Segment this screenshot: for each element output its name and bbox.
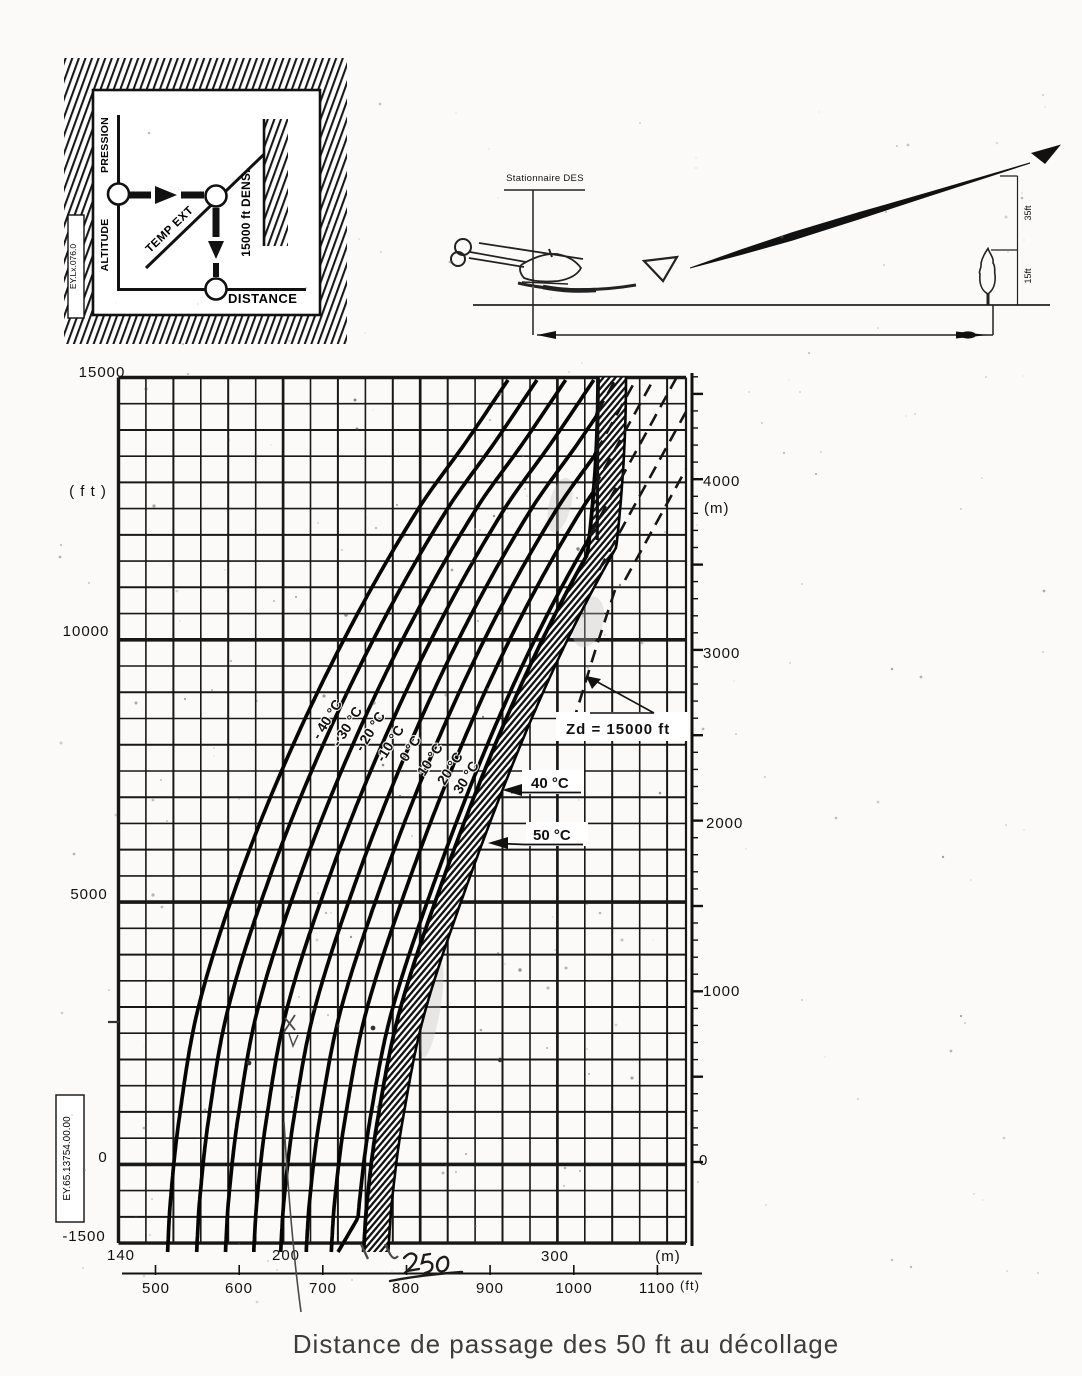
svg-text:DISTANCE: DISTANCE [228,291,297,306]
svg-text:( f t ): ( f t ) [69,483,107,500]
svg-text:EY.65.13754.00.00: EY.65.13754.00.00 [62,1116,73,1201]
svg-text:Distance de passage des 50 ft: Distance de passage des 50 ft au décolla… [293,1329,839,1359]
svg-text:140: 140 [107,1247,135,1264]
svg-text:200: 200 [272,1247,300,1264]
svg-text:50 °C: 50 °C [533,827,571,844]
svg-text:15ft: 15ft [1023,268,1033,284]
svg-text:(m): (m) [655,1248,681,1265]
svg-text:15000 ft DENS.: 15000 ft DENS. [239,169,253,256]
svg-text:0: 0 [98,1149,107,1166]
svg-text:900: 900 [476,1280,504,1297]
svg-text:3000: 3000 [703,645,740,662]
svg-text:600: 600 [225,1280,253,1297]
svg-text:EY.Lx.076.0: EY.Lx.076.0 [68,244,78,289]
svg-text:700: 700 [309,1280,337,1297]
svg-text:10000: 10000 [63,623,110,640]
svg-text:Stationnaire DES: Stationnaire DES [506,173,584,184]
svg-text:2000: 2000 [706,815,743,832]
svg-text:(m): (m) [704,500,730,517]
svg-text:500: 500 [142,1280,170,1297]
svg-text:1000: 1000 [703,983,740,1000]
svg-text:1000: 1000 [555,1280,592,1297]
svg-text:Zd = 15000 ft: Zd = 15000 ft [566,721,670,738]
svg-text:35ft: 35ft [1023,205,1033,221]
svg-text:0: 0 [699,1152,708,1169]
svg-text:ALTITUDE: ALTITUDE [99,219,111,272]
svg-text:15000: 15000 [79,364,126,381]
svg-text:-1500: -1500 [62,1228,105,1245]
svg-text:PRESSION: PRESSION [99,117,111,173]
svg-text:5000: 5000 [70,886,107,903]
svg-text:1100: 1100 [639,1280,675,1297]
svg-text:300: 300 [541,1248,569,1265]
svg-text:(ft): (ft) [680,1278,700,1293]
svg-text:800: 800 [392,1280,420,1297]
svg-text:40 °C: 40 °C [531,775,569,792]
svg-text:4000: 4000 [703,473,740,490]
